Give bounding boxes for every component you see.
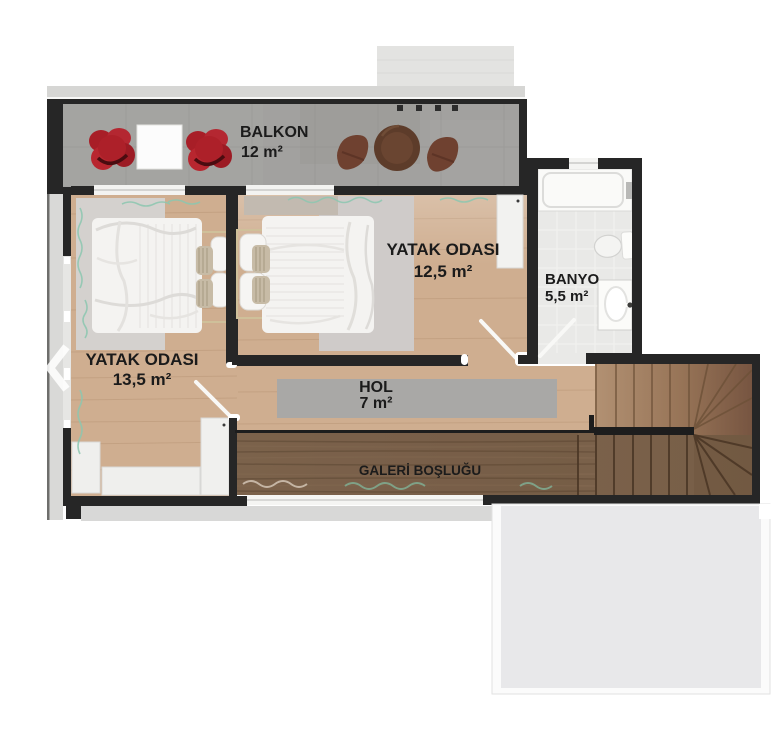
svg-text:HOL: HOL <box>359 379 393 396</box>
svg-text:13,5 m²: 13,5 m² <box>113 370 172 389</box>
svg-text:BANYO: BANYO <box>545 271 600 288</box>
svg-text:BALKON: BALKON <box>240 124 308 141</box>
svg-text:YATAK ODASI: YATAK ODASI <box>386 240 499 259</box>
svg-text:YATAK ODASI: YATAK ODASI <box>85 350 198 369</box>
svg-text:5,5 m²: 5,5 m² <box>545 288 588 305</box>
svg-text:7 m²: 7 m² <box>360 395 393 412</box>
svg-text:12,5 m²: 12,5 m² <box>414 262 473 281</box>
svg-text:GALERİ BOŞLUĞU: GALERİ BOŞLUĞU <box>359 463 481 478</box>
svg-text:12 m²: 12 m² <box>241 144 283 161</box>
